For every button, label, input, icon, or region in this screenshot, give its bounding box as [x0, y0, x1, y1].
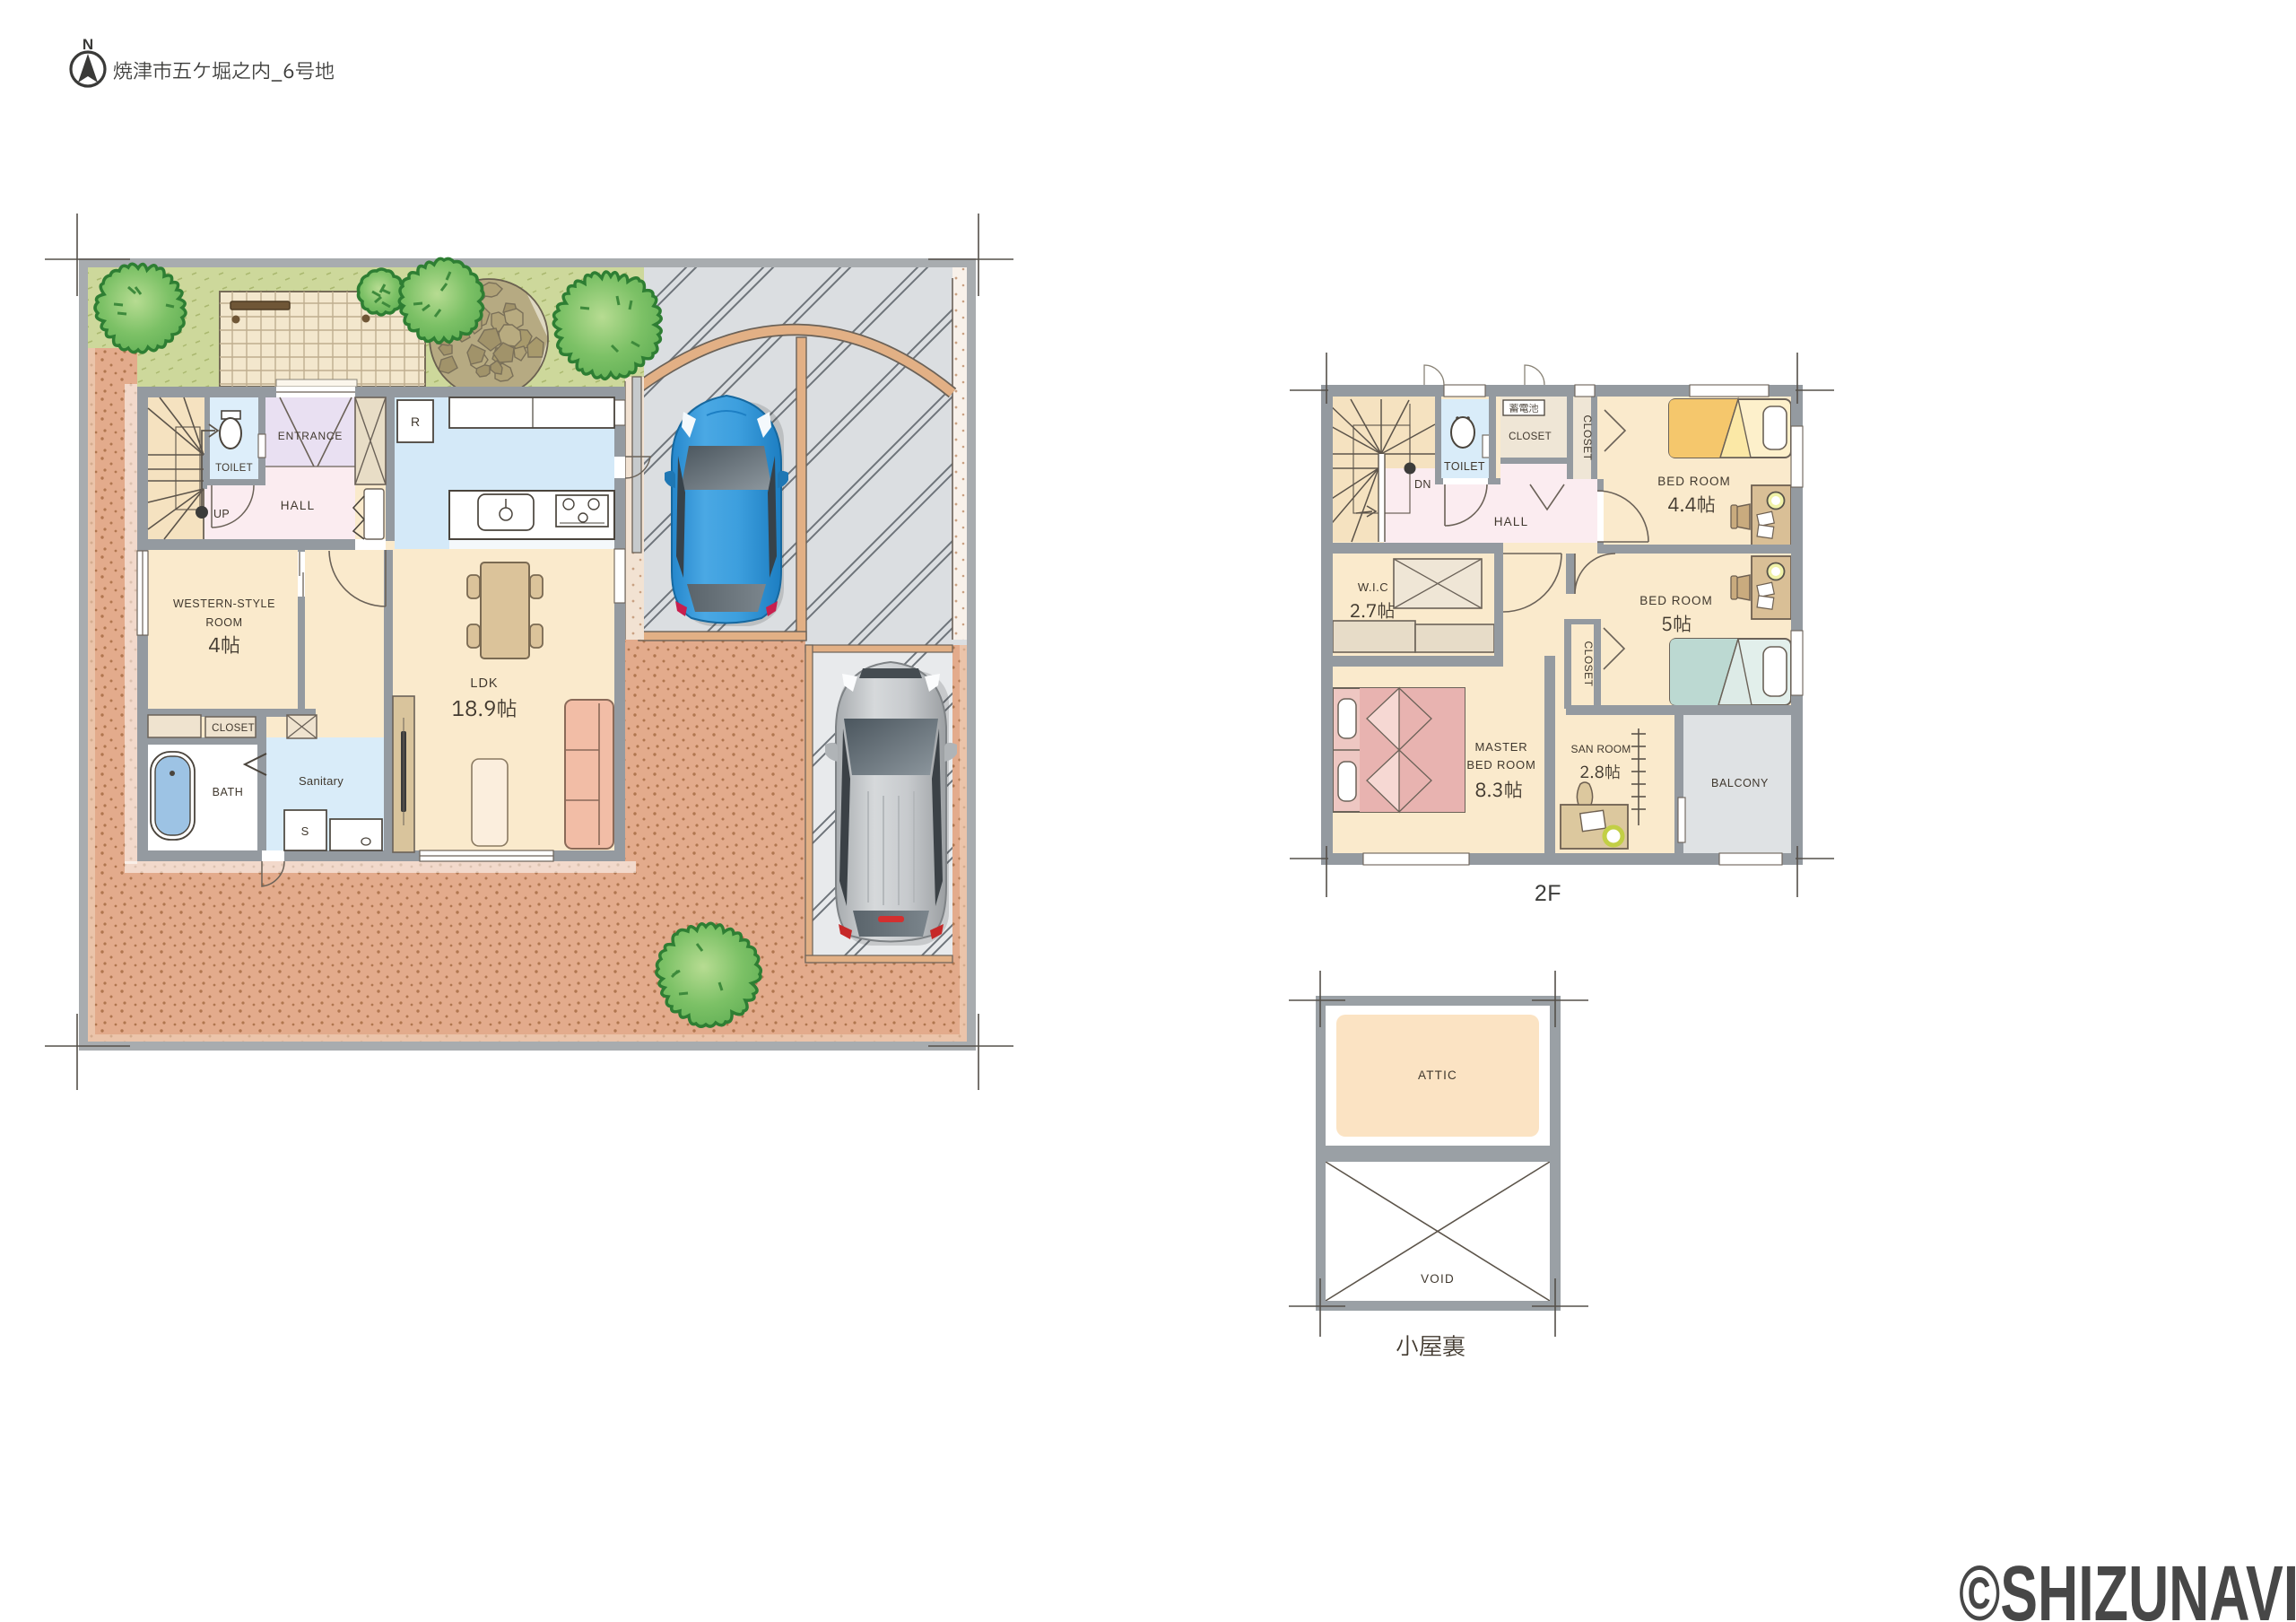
svg-text:VOID: VOID: [1421, 1272, 1455, 1286]
svg-text:BALCONY: BALCONY: [1711, 777, 1769, 789]
svg-text:TOILET: TOILET: [1444, 460, 1485, 473]
svg-text:BED ROOM: BED ROOM: [1466, 758, 1535, 772]
svg-text:HALL: HALL: [281, 499, 316, 512]
svg-text:MASTER: MASTER: [1475, 740, 1528, 754]
svg-text:N: N: [83, 36, 93, 53]
svg-text:Sanitary: Sanitary: [299, 774, 344, 788]
svg-text:ROOM: ROOM: [205, 616, 242, 629]
svg-text:HALL: HALL: [1494, 515, 1529, 528]
svg-text:BED ROOM: BED ROOM: [1639, 594, 1713, 607]
svg-text:ENTRANCE: ENTRANCE: [278, 430, 343, 442]
svg-text:TOILET: TOILET: [215, 463, 253, 474]
svg-text:BED ROOM: BED ROOM: [1657, 475, 1731, 488]
svg-text:2F: 2F: [1535, 881, 1561, 906]
svg-text:ATTIC: ATTIC: [1418, 1068, 1457, 1082]
svg-text:CLOSET: CLOSET: [1581, 414, 1594, 460]
svg-text:CLOSET: CLOSET: [212, 723, 255, 734]
svg-text:LDK: LDK: [470, 676, 498, 691]
svg-text:DN: DN: [1414, 478, 1431, 491]
svg-text:W.I.C: W.I.C: [1358, 580, 1388, 594]
svg-text:©SHIZUNAVI: ©SHIZUNAVI: [1959, 1550, 2296, 1622]
svg-text:UP: UP: [213, 508, 230, 520]
svg-text:SAN ROOM: SAN ROOM: [1571, 743, 1631, 755]
svg-text:BATH: BATH: [213, 786, 244, 798]
svg-text:CLOSET: CLOSET: [1509, 432, 1552, 442]
svg-text:WESTERN-STYLE: WESTERN-STYLE: [173, 597, 275, 610]
svg-text:CLOSET: CLOSET: [1582, 641, 1595, 686]
svg-text:R: R: [411, 414, 420, 429]
svg-text:S: S: [301, 824, 309, 838]
